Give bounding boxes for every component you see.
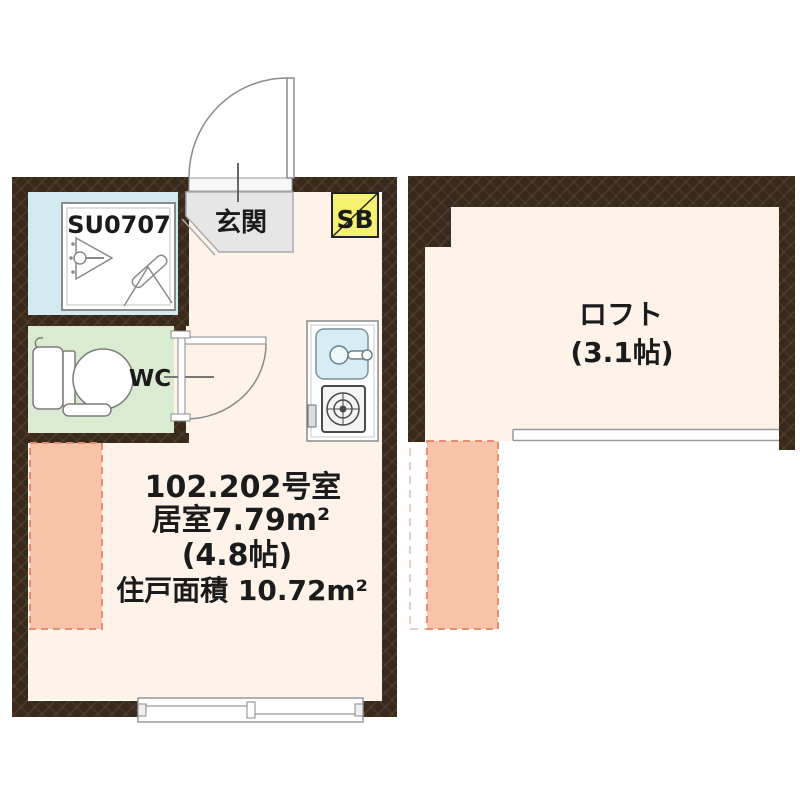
wc-door-leaf [185, 337, 266, 344]
wall-segment [28, 315, 189, 326]
loft-footprint-marker [30, 443, 102, 629]
loft-size-label: (3.1帖) [570, 336, 673, 369]
loft-floor [451, 207, 779, 247]
left-unit: SU0707 WC 玄関 [12, 78, 397, 722]
faucet-icon [330, 346, 348, 364]
loft-label: ロフト [579, 298, 663, 331]
window-latch-icon [247, 702, 255, 718]
window-icon [138, 698, 363, 722]
entrance-door-icon [189, 78, 294, 202]
floor-plan-svg: SU0707 WC 玄関 [0, 0, 800, 800]
floor-plan-canvas: SU0707 WC 玄関 [0, 0, 800, 800]
wc-door-frame [178, 338, 185, 414]
right-unit: ロフト (3.1帖) [408, 176, 795, 629]
shower-unit-label: SU0707 [67, 211, 171, 239]
wall-segment [12, 177, 189, 192]
room-info-line-3: (4.8帖) [182, 538, 293, 573]
entrance-label: 玄関 [215, 207, 267, 238]
entrance-door-sill [189, 178, 292, 191]
wall-segment [408, 176, 425, 442]
kitchen-handle-icon [308, 405, 316, 427]
loft-floor [425, 429, 513, 441]
wc-door-hinge [171, 331, 190, 338]
room-info-line-1: 102.202号室 [145, 470, 342, 505]
wall-segment [12, 177, 28, 717]
stove-icon [322, 386, 365, 432]
loft-edge-strip [513, 430, 779, 441]
wall-segment [382, 177, 397, 717]
wall-segment [425, 192, 780, 207]
entrance-door-arc [189, 78, 287, 177]
wc-door-hinge [171, 414, 190, 421]
wall-segment [292, 177, 397, 192]
kitchen-unit-icon [307, 321, 378, 441]
wc-label: WC [129, 366, 171, 392]
wall-segment [408, 176, 795, 192]
shower-head-icon [74, 252, 86, 264]
loft-footprint-marker [427, 441, 498, 629]
wall-segment [779, 176, 795, 450]
wall-segment [28, 433, 189, 443]
shoebox-label: SB [336, 205, 373, 234]
room-info-line-2: 居室7.79m² [152, 503, 330, 538]
room-info-line-4: 住戸面積 10.72m² [116, 574, 368, 607]
entrance-door-leaf [287, 78, 294, 178]
wall-segment [425, 207, 451, 247]
